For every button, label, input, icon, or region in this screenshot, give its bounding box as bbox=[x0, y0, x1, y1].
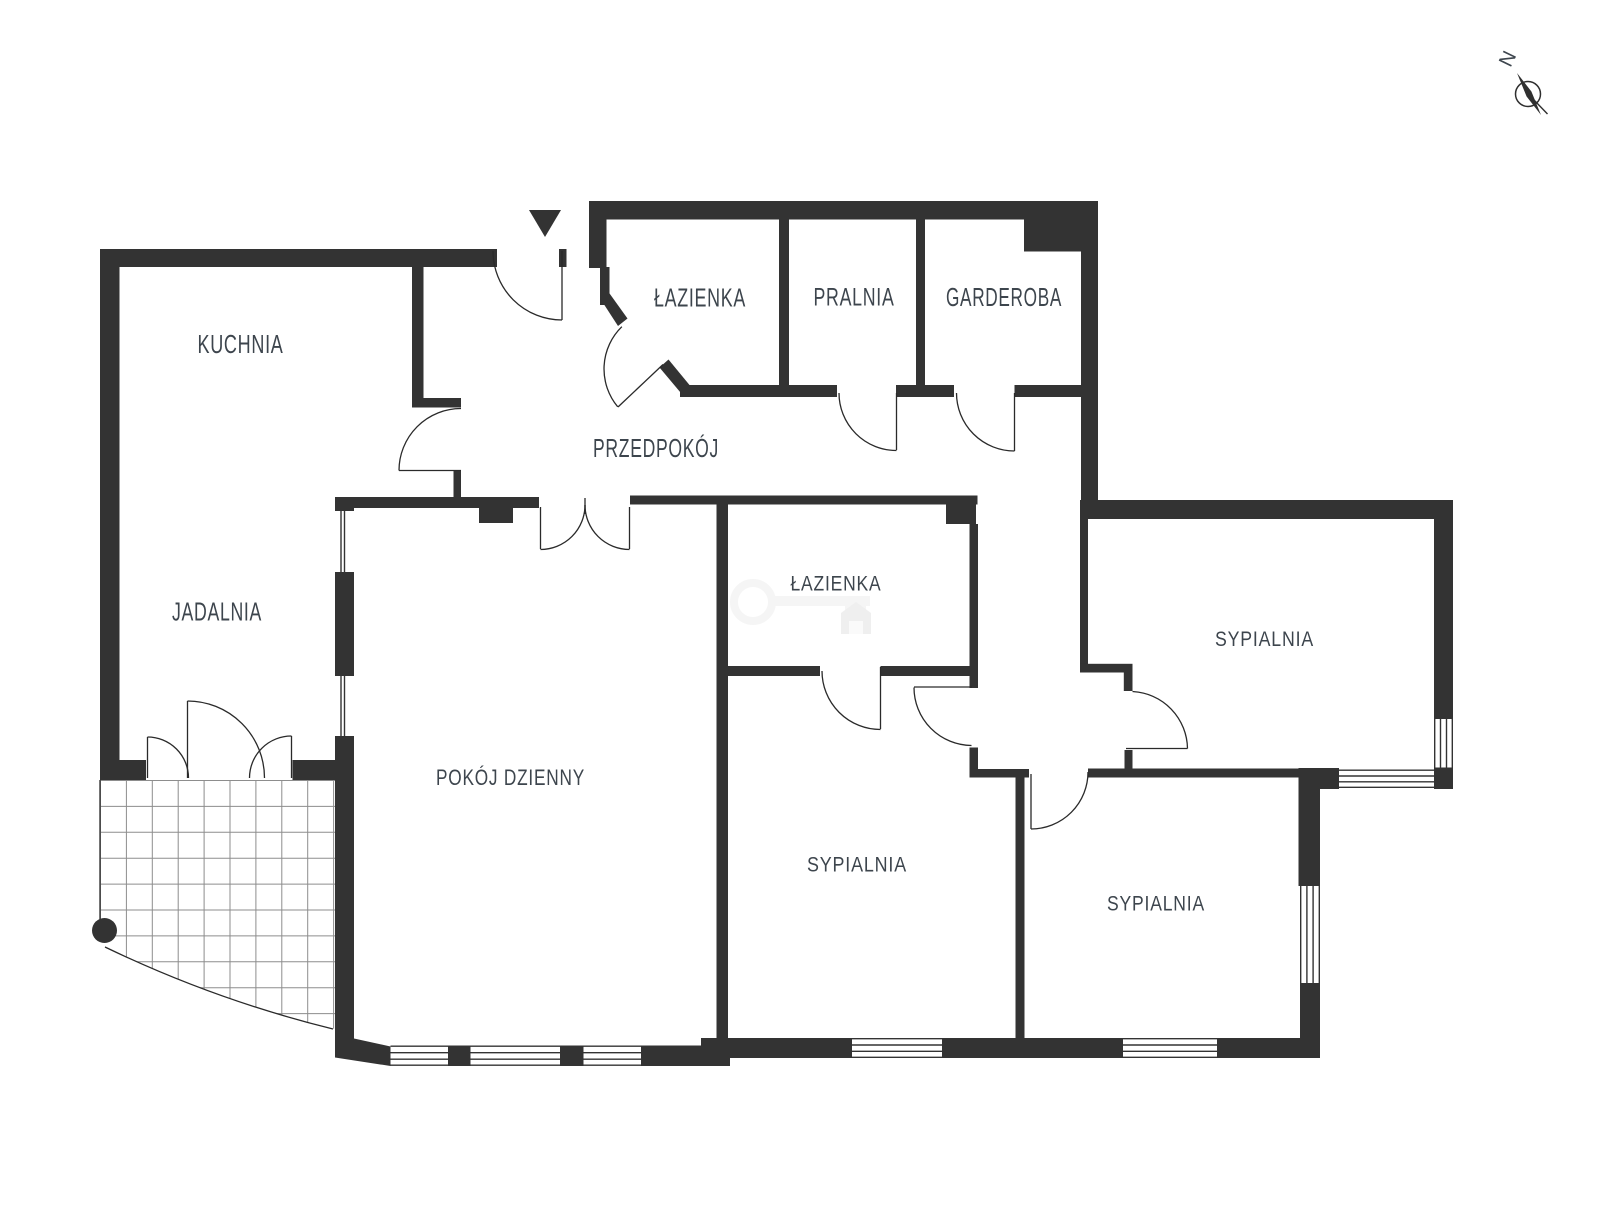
svg-text:ŁAZIENKA: ŁAZIENKA bbox=[654, 283, 746, 313]
svg-text:SYPIALNIA: SYPIALNIA bbox=[807, 853, 907, 877]
svg-text:ŁAZIENKA: ŁAZIENKA bbox=[791, 572, 882, 596]
svg-text:PRZEDPOKÓJ: PRZEDPOKÓJ bbox=[593, 434, 719, 463]
svg-text:SYPIALNIA: SYPIALNIA bbox=[1107, 892, 1205, 916]
svg-text:KUCHNIA: KUCHNIA bbox=[198, 329, 284, 359]
svg-text:JADALNIA: JADALNIA bbox=[172, 597, 262, 627]
svg-text:PRALNIA: PRALNIA bbox=[814, 284, 895, 312]
svg-text:POKÓJ DZIENNY: POKÓJ DZIENNY bbox=[436, 765, 585, 790]
svg-text:GARDEROBA: GARDEROBA bbox=[946, 284, 1062, 312]
svg-text:SYPIALNIA: SYPIALNIA bbox=[1215, 627, 1314, 651]
